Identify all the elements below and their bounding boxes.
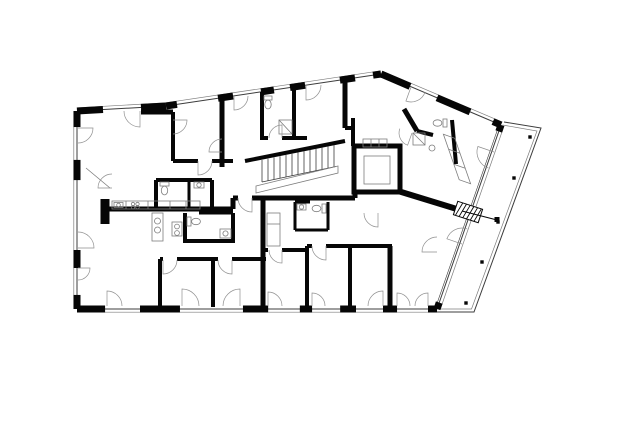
elevator-shaft — [354, 139, 400, 192]
exterior-wall-piers — [77, 74, 501, 309]
staircase — [245, 141, 345, 193]
floor-plan — [0, 0, 620, 421]
interior-walls — [103, 80, 460, 312]
fixtures-furniture — [86, 96, 471, 246]
exterior-glazing — [74, 71, 504, 312]
floor-plan-drawing — [0, 0, 620, 421]
